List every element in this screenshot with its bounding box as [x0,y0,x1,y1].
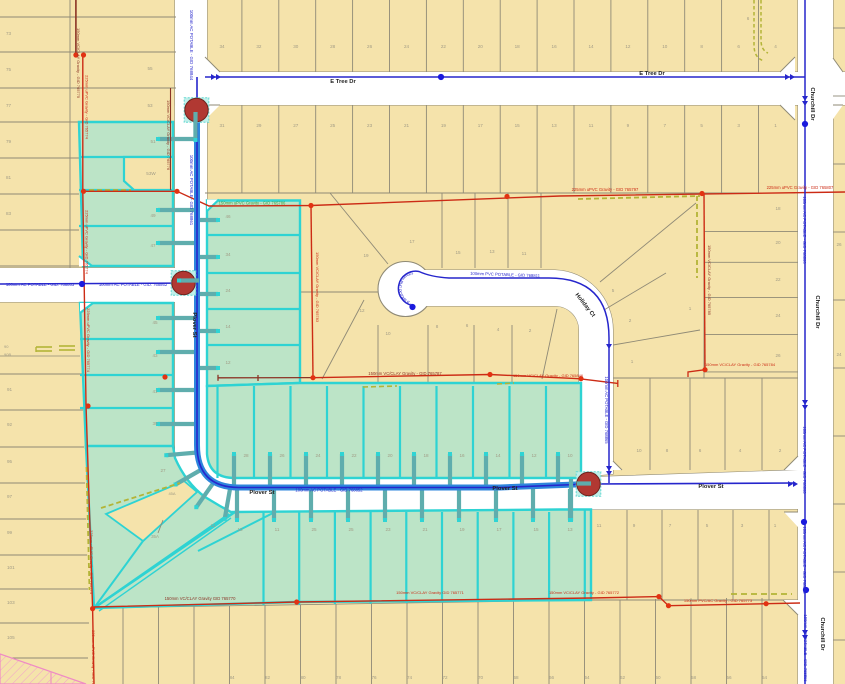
svg-text:150mm VC/CLAY Gravity - GID 76: 150mm VC/CLAY Gravity - GID 765775 [76,28,81,99]
svg-text:70: 70 [478,675,484,680]
svg-text:14: 14 [495,453,501,458]
svg-text:82: 82 [265,675,271,680]
svg-text:75: 75 [6,67,12,72]
svg-text:6: 6 [747,16,750,21]
svg-text:34: 34 [219,44,225,49]
svg-text:32: 32 [256,44,262,49]
svg-text:100mm AC POTABLE - GID 768865: 100mm AC POTABLE - GID 768865 [604,376,609,444]
svg-text:8: 8 [700,44,703,49]
svg-text:225mm uPVC Gravity - GID 76577: 225mm uPVC Gravity - GID 765774 [89,530,94,595]
svg-text:30: 30 [293,44,299,49]
svg-text:225mm uPVC Gravity - GID 76577: 225mm uPVC Gravity - GID 765774 [85,75,90,140]
svg-text:74: 74 [407,675,413,680]
svg-text:26: 26 [279,453,285,458]
svg-text:100mm AC POTABLE - GID 768859: 100mm AC POTABLE - GID 768859 [802,526,807,594]
svg-text:12: 12 [359,308,365,313]
svg-text:41: 41 [152,389,158,394]
svg-text:20: 20 [775,240,781,245]
svg-text:11: 11 [275,527,280,532]
svg-text:19: 19 [441,123,447,128]
svg-text:13: 13 [567,527,573,532]
svg-text:11: 11 [522,251,527,256]
svg-text:17: 17 [496,527,502,532]
svg-text:83: 83 [6,211,12,216]
svg-text:23: 23 [367,123,373,128]
svg-text:100mm AC POTABLE - GID. 768863: 100mm AC POTABLE - GID. 768863 [6,282,75,287]
svg-text:84: 84 [229,675,235,680]
svg-text:7: 7 [669,523,672,528]
svg-text:60: 60 [655,675,661,680]
svg-text:53W: 53W [146,171,156,176]
svg-text:15: 15 [533,527,539,532]
svg-text:72: 72 [442,675,448,680]
svg-text:E Tree Dr: E Tree Dr [639,71,665,77]
svg-text:27: 27 [293,123,299,128]
svg-text:225mm uPVC Gravity - GID 76577: 225mm uPVC Gravity - GID 765774 [86,308,91,373]
svg-text:Churchill Dr: Churchill Dr [814,295,820,329]
svg-text:22: 22 [775,277,781,282]
svg-text:19: 19 [363,253,369,258]
svg-text:1: 1 [689,306,692,311]
svg-text:150mm uPVC Gravity - GID 76578: 150mm uPVC Gravity - GID 765786 [219,200,286,205]
svg-text:150mm VC/CLAY Gravity - GID 76: 150mm VC/CLAY Gravity - GID 765785 [707,245,712,316]
svg-text:79: 79 [6,139,12,144]
svg-text:24: 24 [836,352,842,357]
svg-text:8: 8 [666,448,669,453]
svg-text:90: 90 [4,344,9,349]
svg-text:150mm VC/CLAY Gravity - GID 76: 150mm VC/CLAY Gravity - GID 765846 [513,373,584,378]
svg-text:53: 53 [147,103,153,108]
svg-text:6: 6 [737,44,740,49]
svg-text:77: 77 [6,103,12,108]
svg-text:24: 24 [315,453,321,458]
svg-text:17: 17 [478,123,484,128]
svg-text:43: 43 [152,353,158,358]
svg-text:34: 34 [225,252,231,257]
svg-text:2: 2 [779,448,782,453]
svg-text:95: 95 [7,459,13,464]
svg-text:39: 39 [152,421,158,426]
svg-text:225mm uPVC Gravity - GID 76577: 225mm uPVC Gravity - GID 765774 [91,630,96,684]
svg-text:1: 1 [774,123,777,128]
svg-text:22: 22 [351,453,357,458]
svg-text:66: 66 [549,675,555,680]
svg-text:15: 15 [455,250,461,255]
svg-text:Churchill Dr: Churchill Dr [819,617,825,651]
svg-text:14: 14 [588,44,594,49]
svg-text:225mm uPVC Gravity - GID 76579: 225mm uPVC Gravity - GID 765797 [572,187,639,192]
svg-text:6: 6 [699,448,702,453]
svg-text:35A: 35A [151,534,159,539]
svg-text:16: 16 [459,453,465,458]
svg-text:47: 47 [150,243,156,248]
svg-text:10: 10 [636,448,642,453]
svg-text:5: 5 [706,523,709,528]
svg-text:78: 78 [336,675,342,680]
svg-text:Churchill Dr: Churchill Dr [809,87,815,121]
svg-text:100mm AC POTABLE - GID 768852: 100mm AC POTABLE - GID 768852 [295,488,363,493]
svg-text:99: 99 [7,530,13,535]
svg-text:9: 9 [627,123,630,128]
svg-text:5: 5 [612,288,615,293]
svg-text:46: 46 [225,214,231,219]
svg-text:Plover St: Plover St [249,490,274,496]
svg-text:73: 73 [6,31,12,36]
svg-text:225mm uPVC Gravity - GID 76577: 225mm uPVC Gravity - GID 765774 [85,210,90,275]
svg-text:105: 105 [7,635,15,640]
svg-text:21: 21 [422,527,428,532]
svg-text:4: 4 [774,44,777,49]
svg-text:56: 56 [726,675,732,680]
svg-text:18: 18 [423,453,429,458]
svg-text:90B: 90B [4,352,11,357]
svg-text:150mm VC/CLAY Gravity GID 765: 150mm VC/CLAY Gravity GID 765770 [165,596,237,601]
svg-text:29: 29 [256,123,262,128]
svg-text:11: 11 [589,123,594,128]
svg-text:81: 81 [6,175,12,180]
svg-text:14: 14 [225,324,231,329]
svg-text:20: 20 [478,44,484,49]
svg-text:13: 13 [552,123,558,128]
svg-text:24: 24 [775,313,781,318]
svg-text:9: 9 [633,523,636,528]
svg-text:10: 10 [662,44,668,49]
svg-text:76: 76 [371,675,377,680]
svg-text:18: 18 [775,206,781,211]
svg-text:45: 45 [152,320,158,325]
svg-text:1: 1 [631,359,634,364]
svg-text:100mm AC POTABLE - GID 768844: 100mm AC POTABLE - GID 768844 [189,10,194,81]
svg-text:150mm VC/CLAY Gravity - GID 76: 150mm VC/CLAY Gravity - GID 765784 [705,362,776,367]
svg-text:27: 27 [160,468,166,473]
svg-text:13: 13 [489,249,495,254]
svg-text:150mm VC/CLAY Gravity GID 765: 150mm VC/CLAY Gravity GID 765771 [396,590,464,595]
svg-text:100mm AC POTABLE - GID 768861: 100mm AC POTABLE - GID 768861 [189,155,194,226]
svg-text:E Tree Dr: E Tree Dr [330,79,356,85]
svg-text:25: 25 [311,527,317,532]
svg-text:100mm AC POTABLE - GID 768866: 100mm AC POTABLE - GID 768866 [803,614,808,682]
svg-text:225mm uPVC Gravity - GID 76580: 225mm uPVC Gravity - GID 765807 [767,185,834,190]
svg-text:21: 21 [404,123,410,128]
svg-text:16: 16 [552,44,558,49]
svg-text:12: 12 [225,360,231,365]
svg-text:26: 26 [836,242,842,247]
svg-text:19: 19 [459,527,465,532]
svg-text:55: 55 [147,66,153,71]
svg-text:2: 2 [529,328,532,333]
svg-text:150mm VC/CLAY Gravity - GID 76: 150mm VC/CLAY Gravity - GID 765783 [315,252,320,323]
svg-text:22: 22 [441,44,447,49]
svg-text:11: 11 [597,523,602,528]
svg-text:26: 26 [775,353,781,358]
svg-text:28: 28 [243,453,249,458]
svg-text:10: 10 [567,453,573,458]
svg-text:10: 10 [385,331,391,336]
svg-text:150mm VC/CLAY Gravity - GID 76: 150mm VC/CLAY Gravity - GID 765772 [549,590,620,595]
svg-text:25: 25 [348,527,354,532]
svg-text:150mm VC/CLAY Gravity - GID 76: 150mm VC/CLAY Gravity - GID 765787 [368,371,442,376]
svg-text:28: 28 [330,44,336,49]
svg-text:7: 7 [664,123,667,128]
svg-text:23: 23 [385,527,391,532]
svg-text:49: 49 [150,213,156,218]
svg-text:97: 97 [7,494,13,499]
svg-text:15: 15 [515,123,521,128]
svg-text:24: 24 [404,44,410,49]
svg-text:12: 12 [531,453,537,458]
svg-text:91: 91 [7,387,13,392]
svg-text:6: 6 [466,323,469,328]
svg-text:51: 51 [150,139,156,144]
svg-text:20: 20 [387,453,393,458]
svg-text:25: 25 [330,123,336,128]
svg-text:100mm AC POTABLE - GID 768866: 100mm AC POTABLE - GID 768866 [802,196,807,264]
svg-text:3: 3 [741,523,744,528]
svg-text:64: 64 [584,675,590,680]
svg-text:8: 8 [436,324,439,329]
svg-text:101: 101 [7,565,15,570]
svg-text:68: 68 [513,675,519,680]
svg-text:12: 12 [625,44,631,49]
svg-text:11: 11 [211,523,216,528]
svg-text:Plover St: Plover St [191,312,197,337]
svg-text:1: 1 [774,523,777,528]
svg-text:17: 17 [409,239,415,244]
svg-text:100mm AC POTABLE - GID 768860: 100mm AC POTABLE - GID 768860 [802,426,807,494]
svg-text:45A: 45A [168,491,175,496]
svg-text:150mm PVC/AC Gravity - GID 765: 150mm PVC/AC Gravity - GID 765773 [684,598,753,603]
svg-text:18: 18 [515,44,521,49]
svg-text:4: 4 [497,327,500,332]
svg-text:80: 80 [300,675,306,680]
svg-text:54: 54 [762,675,768,680]
svg-text:150mm VC/CLAY Gravity - GID 76: 150mm VC/CLAY Gravity - GID 765776 [166,100,171,171]
svg-text:2: 2 [629,318,632,323]
svg-text:4: 4 [739,448,742,453]
svg-text:Plover St: Plover St [492,486,517,492]
svg-text:62: 62 [620,675,626,680]
svg-text:26: 26 [367,44,373,49]
svg-text:3: 3 [737,123,740,128]
svg-text:103: 103 [7,600,15,605]
svg-text:24: 24 [225,288,231,293]
svg-text:13: 13 [237,527,243,532]
svg-text:Plover St: Plover St [698,484,723,490]
svg-text:58: 58 [691,675,697,680]
svg-text:92: 92 [7,422,13,427]
svg-text:100mm AC POTABLE - GID. 768862: 100mm AC POTABLE - GID. 768862 [99,282,168,287]
svg-text:5: 5 [700,123,703,128]
svg-text:31: 31 [219,123,225,128]
